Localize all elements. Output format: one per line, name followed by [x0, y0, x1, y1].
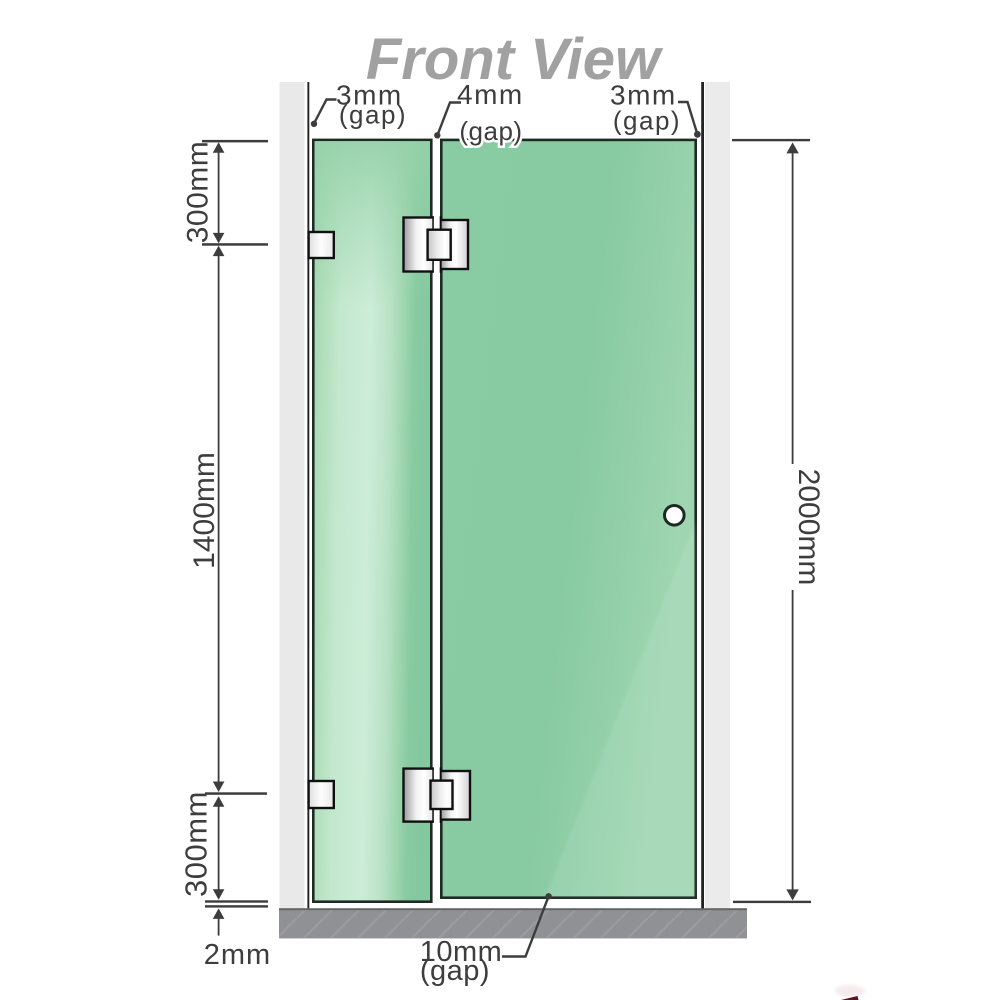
svg-text:2mm: 2mm — [204, 939, 271, 971]
svg-text:1400mm: 1400mm — [188, 452, 221, 569]
svg-text:300mm: 300mm — [179, 791, 214, 897]
svg-text:300mm: 300mm — [182, 141, 215, 244]
svg-text:(gap): (gap) — [420, 955, 490, 987]
svg-text:(gap): (gap) — [339, 100, 407, 130]
svg-text:4mm: 4mm — [457, 79, 524, 110]
svg-text:(gap): (gap) — [459, 116, 522, 146]
svg-text:2000mm: 2000mm — [792, 469, 825, 586]
svg-text:(gap): (gap) — [613, 106, 681, 136]
